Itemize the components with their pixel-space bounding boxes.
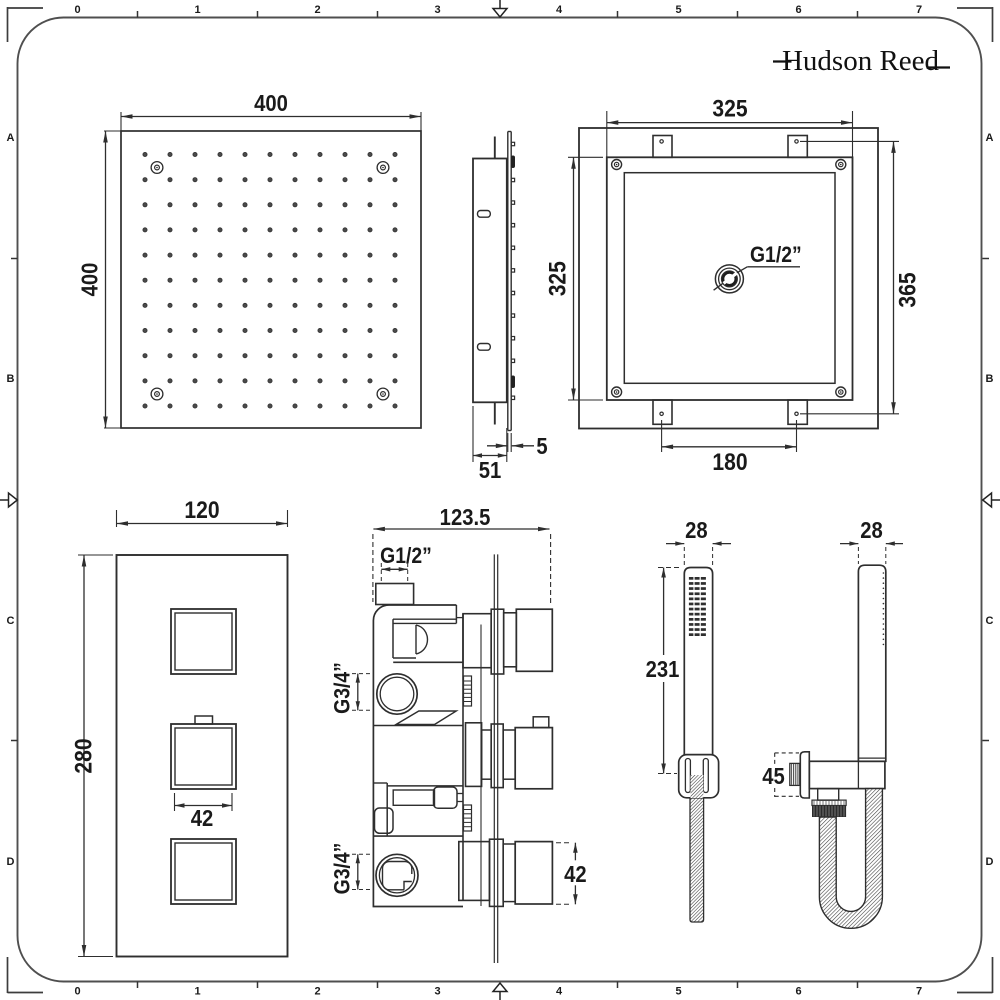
- svg-text:G1/2”: G1/2”: [750, 243, 802, 267]
- svg-text:123.5: 123.5: [440, 504, 491, 531]
- svg-text:5: 5: [536, 433, 547, 460]
- svg-text:D: D: [986, 856, 994, 868]
- svg-text:6: 6: [795, 4, 801, 16]
- svg-text:400: 400: [76, 263, 103, 297]
- svg-text:42: 42: [191, 805, 214, 832]
- svg-text:51: 51: [479, 457, 502, 484]
- svg-text:4: 4: [556, 986, 563, 998]
- svg-text:7: 7: [916, 986, 922, 998]
- svg-text:365: 365: [894, 272, 921, 307]
- svg-text:0: 0: [74, 986, 80, 998]
- svg-text:C: C: [986, 615, 994, 627]
- svg-text:0: 0: [74, 4, 80, 16]
- svg-text:B: B: [986, 373, 994, 385]
- svg-text:120: 120: [184, 497, 219, 524]
- svg-text:6: 6: [795, 986, 801, 998]
- svg-text:2: 2: [314, 986, 320, 998]
- svg-text:3: 3: [434, 986, 440, 998]
- svg-text:7: 7: [916, 4, 922, 16]
- svg-text:231: 231: [646, 656, 680, 683]
- svg-text:28: 28: [685, 517, 708, 544]
- svg-text:Hudson Reed: Hudson Reed: [782, 45, 940, 77]
- svg-text:5: 5: [675, 986, 681, 998]
- svg-text:1: 1: [194, 986, 200, 998]
- svg-text:A: A: [7, 132, 15, 144]
- svg-text:180: 180: [712, 449, 747, 476]
- svg-text:325: 325: [712, 95, 747, 122]
- svg-text:45: 45: [762, 763, 785, 790]
- svg-text:2: 2: [314, 4, 320, 16]
- svg-text:B: B: [7, 373, 15, 385]
- svg-text:1: 1: [194, 4, 200, 16]
- svg-text:5: 5: [675, 4, 681, 16]
- svg-text:A: A: [986, 132, 994, 144]
- svg-text:G1/2”: G1/2”: [380, 544, 432, 568]
- svg-text:3: 3: [434, 4, 440, 16]
- svg-text:400: 400: [254, 90, 288, 117]
- svg-text:42: 42: [564, 861, 587, 888]
- svg-text:G3/4”: G3/4”: [330, 843, 354, 895]
- svg-text:28: 28: [860, 517, 883, 544]
- svg-text:D: D: [7, 856, 15, 868]
- svg-text:G3/4”: G3/4”: [330, 662, 354, 714]
- svg-text:280: 280: [70, 738, 97, 773]
- svg-text:4: 4: [556, 4, 563, 16]
- svg-text:C: C: [7, 615, 15, 627]
- svg-text:325: 325: [544, 261, 571, 296]
